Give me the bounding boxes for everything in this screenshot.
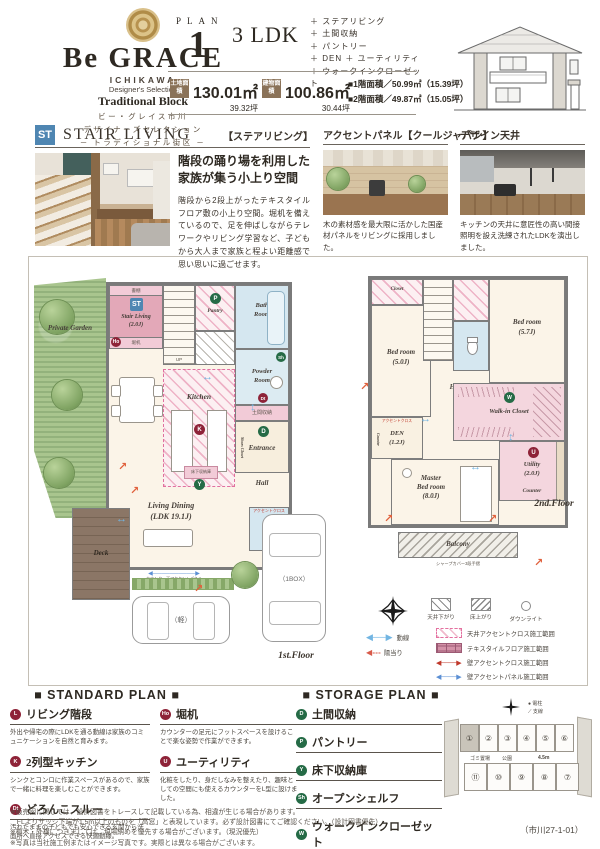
sun-arrow: ↗: [194, 584, 203, 595]
chair-icon: [111, 405, 121, 417]
design-ceiling-caption: キッチンの天井に意匠性の高い間接照明を設え洗練されたLDKを演出しました。: [460, 219, 585, 253]
bed1-size: (5.0J): [372, 358, 430, 367]
divider: [460, 144, 585, 145]
stairs-1f: UP: [163, 285, 195, 365]
lot-cell: ③: [498, 724, 517, 752]
st-plan-badge: ST: [130, 298, 143, 311]
bathtub-icon: [267, 291, 285, 345]
item-desc: シンクとコンロに作業スペースがあるので、家族で一緒に料理を楽しむことができます。: [10, 776, 150, 795]
floor-up-swatch: [471, 598, 491, 611]
flow-arrow: ↔: [470, 462, 481, 473]
lot-cell: ⑩: [487, 763, 510, 791]
item-badge: L: [10, 709, 21, 720]
room-pantry: P Pantry: [195, 285, 235, 331]
dining-table-icon: [119, 377, 155, 423]
plan-number-block: PLAN 1: [176, 16, 220, 64]
stair-living-headline-1: 階段の踊り場を利用した: [178, 153, 310, 170]
lot-number: ⑪: [472, 772, 480, 783]
room-doma: 土間収納: [235, 405, 289, 421]
underfloor-label: 床下収納庫: [191, 470, 211, 475]
item-badge: U: [160, 756, 171, 767]
utility-name: Utility: [500, 461, 564, 470]
item-desc: 外出や帰宅の際にLDKを通る動線は家族のコミュニケーションを自然と育みます。: [10, 728, 150, 747]
sofa-icon: [143, 529, 193, 547]
stairs-up-label: UP: [164, 357, 194, 362]
divider: [168, 114, 416, 115]
feature-item: ＋ ステアリビング: [310, 16, 430, 28]
floorplan-2f: Closet Bed room (5.0J) Bed room (5.7J) H…: [358, 262, 586, 602]
hedge: [132, 578, 234, 590]
utility-counter-label: Counter: [500, 488, 564, 495]
item-desc: 化粧をしたり、身だしなみを整えたり、趣味としての空間にも使えるカウンターをL型に…: [160, 776, 298, 804]
deck-label: Deck: [73, 549, 129, 558]
tree-icon: [232, 562, 258, 588]
lots-bottom-row: ⑪⑩⑨⑧⑦: [464, 763, 579, 791]
washer-icon: [270, 376, 283, 389]
building-area-value: 100.86㎡: [285, 85, 350, 102]
closet-2f: Closet: [371, 279, 423, 305]
building-area: 建物面積 100.86㎡ 30.44坪: [262, 79, 350, 114]
design-ceiling-photo: [460, 150, 585, 215]
lots-top-row: ①②③④⑤⑥: [460, 724, 574, 752]
room-bed1: Bed room (5.0J): [371, 305, 431, 417]
room-utility: U Utility (2.0J) Counter: [499, 441, 565, 501]
chair-icon: [111, 385, 121, 397]
wire-legend: ⟋ 支線: [528, 708, 543, 715]
badge-u: U: [528, 447, 539, 458]
lot-cell: ②: [479, 724, 498, 752]
lot-cell: ⑧: [533, 763, 556, 791]
road-right: [577, 717, 592, 798]
plan-number: 1: [176, 26, 220, 64]
lot-number: ②: [485, 734, 492, 743]
shelf-label: 書棚: [132, 288, 141, 293]
road-width-label: 4.5m: [538, 755, 549, 761]
shoes-closet-label: Shoes Closet: [237, 426, 245, 470]
flow-label: 動線: [397, 633, 410, 642]
range-label: 壁アクセントクロス施工範囲: [467, 658, 549, 667]
sun-arrow: ↗: [488, 514, 497, 525]
footer-note: ※写真は当社施工例またはイメージ写真です。実際とは異なる場合がございます。: [10, 839, 480, 849]
range-label: テキスタイルフロア施工範囲: [467, 644, 549, 653]
standard-plan-item: U ユーティリティ 化粧をしたり、身だしなみを整えたり、趣味としての空間にも使え…: [160, 754, 298, 804]
item-title: 床下収納庫: [312, 762, 367, 778]
lot-cell: ⑥: [555, 724, 574, 752]
stair-living-name: Stair Living: [110, 313, 162, 321]
item-badge: P: [296, 737, 307, 748]
lot-cell: ⑤: [536, 724, 555, 752]
downlight-swatch: [521, 601, 531, 611]
lot-number: ⑧: [541, 773, 548, 782]
lot-cell: ④: [517, 724, 536, 752]
road-left: [444, 719, 459, 798]
floor-up-label: 床上がり: [464, 613, 498, 621]
feature-item: ＋ DEN ＋ ユーティリティ: [310, 53, 430, 65]
open-hatch-2f: [453, 279, 489, 321]
item-badge: Y: [296, 765, 307, 776]
stair-living-size: (2.0J): [110, 321, 162, 329]
brand-medallion-icon: [126, 8, 160, 42]
flow-arrow: ↔: [506, 432, 517, 443]
divider: [35, 147, 310, 148]
accent-panel-photo: [323, 150, 448, 215]
compass-icon: [378, 596, 408, 626]
item-title: ユーティリティ: [176, 754, 252, 770]
flow-arrow: ↔: [420, 414, 431, 425]
standard-plan-item: Ho 堀机 カウンターの足元にフットスペースを設けることで楽な姿勢で作業ができま…: [160, 706, 298, 747]
land-area-value: 130.01㎡: [193, 85, 258, 102]
range-label: 壁アクセントパネル施工範囲: [467, 672, 549, 681]
standard-plan-item: L リビング階段 外出や帰宅の際にLDKを通る動線は家族のコミュニケーションを自…: [10, 706, 150, 747]
badge-w: W: [504, 392, 515, 403]
plan-type: 3 LDK: [232, 22, 299, 48]
lot-number: ⑤: [542, 734, 549, 743]
car-1box-label: （1BOX）: [279, 573, 309, 583]
balcony-label: Balcony: [399, 540, 517, 549]
sun-arrow-icon: ◀ - - -: [366, 648, 380, 657]
range-legend: 天井アクセントクロス施工範囲 テキスタイルフロア施工範囲 壁アクセントクロス施工…: [436, 628, 584, 686]
flow-arrow: ↔: [248, 402, 259, 413]
sitemap-compass-icon: [502, 698, 520, 716]
lot-number: ⑥: [561, 734, 568, 743]
storage-plan-item: P パントリー: [296, 734, 442, 753]
item-title: 土間収納: [312, 706, 356, 722]
trash-label: ゴミ置場: [470, 755, 490, 762]
sitemap: ● 電柱 ⟋ 支線 ①②③④⑤⑥ ゴミ置場 公園 4.5m ⑪⑩⑨⑧⑦: [444, 698, 594, 800]
feature-item: ＋ パントリー: [310, 41, 430, 53]
footer-note: ※販売図に関しては、設計図書をトレースして記載している為、相違が生じる場合があり…: [10, 808, 480, 818]
lot-number: ③: [504, 734, 511, 743]
pole-legend: ● 電柱: [528, 700, 542, 707]
car-kei: （軽）: [132, 596, 230, 644]
footer-note: FLよりサッシ下端が1.5m以上のものを「高窓」と表現しています。必ず設計図書に…: [10, 818, 480, 828]
room-kitchen: Kitchen K 床下収納庫 Y: [163, 369, 235, 487]
toilet-icon: [467, 340, 478, 355]
room-stair-living: 書棚 ST Stair Living (2.0J) 堀机 Ho: [109, 285, 163, 349]
range-legend-row: 天井アクセントクロス施工範囲: [436, 628, 584, 638]
range-legend-row: 壁アクセントパネル施工範囲: [436, 672, 584, 681]
building-area-tsubo: 30.44坪: [285, 103, 350, 114]
stair-living-header: ST STAIR LIVING 【ステアリビング】: [35, 125, 313, 145]
room-toilet-2f: [453, 321, 489, 371]
flow-arrow: ↔: [202, 372, 213, 383]
lot-number: ①: [466, 734, 473, 743]
room-master: Master Bed room (8.0J): [391, 459, 499, 525]
range-legend-row: 壁アクセントクロス施工範囲: [436, 658, 584, 667]
range-swatch: [436, 628, 462, 638]
item-title: リビング階段: [26, 706, 92, 722]
lot-cell: ①: [460, 724, 479, 752]
room-entrance: D Entrance Shoes Closet: [235, 421, 289, 473]
room-den: アクセントクロス DEN (1.2J) Counter: [371, 417, 423, 459]
sun-arrow: ↗: [534, 558, 543, 569]
kitchen-island-icon: [171, 410, 193, 472]
range-legend-row: テキスタイルフロア施工範囲: [436, 643, 584, 653]
chair-icon: [153, 405, 163, 417]
floor2-label: 2nd.Floor: [522, 498, 586, 511]
lot-cell: ⑪: [464, 763, 487, 791]
item-title: 2列型キッチン: [26, 754, 98, 770]
closet-label: Closet: [372, 287, 422, 294]
room-bath: Bath Room: [235, 285, 289, 349]
range-label: 天井アクセントクロス施工範囲: [467, 629, 555, 638]
park-label: 公園: [502, 755, 512, 762]
lot-number: ⑦: [564, 773, 571, 782]
item-badge: Sh: [296, 793, 307, 804]
ceiling-drop-label: 天井下がり: [424, 613, 458, 621]
item-title: オープンシェルフ: [312, 790, 399, 806]
range-swatch: [436, 659, 462, 667]
stair-living-text: 階段の踊り場を利用した 家族が集う小上り空間 階段から2段上がったテキスタイルフ…: [178, 153, 310, 272]
storage-plan-item: Sh オープンシェルフ: [296, 790, 442, 809]
badge-p: P: [210, 293, 221, 304]
land-area-badge: 土地面積: [170, 79, 189, 98]
stair-living-photo: [35, 153, 170, 246]
badge-ho: Ho: [111, 337, 121, 347]
badge-sh: Sh: [276, 352, 286, 362]
stair-living-headline-2: 家族が集う小上り空間: [178, 170, 310, 187]
room-bed2: Bed room (5.7J): [489, 279, 565, 383]
house-2f: Closet Bed room (5.0J) Bed room (5.7J) H…: [368, 276, 568, 528]
bed1-name: Bed room: [372, 348, 430, 357]
floor1-label: 1st.Floor: [266, 650, 326, 663]
land-area: 土地面積 130.01㎡ 39.32坪: [170, 79, 258, 114]
car-kei-label: （軽）: [171, 615, 192, 625]
bed2-name: Bed room: [490, 318, 564, 327]
design-ceiling-title: デザイン天井: [460, 127, 520, 142]
sun-arrow: ↗: [118, 462, 127, 473]
floor2-area: ■2階面積／49.87㎡（15.05坪）: [348, 92, 468, 107]
badge-d: D: [258, 426, 269, 437]
kitchen-counter-icon: [207, 410, 227, 472]
storage-closet-1f: [195, 331, 235, 365]
item-badge: Ho: [160, 709, 171, 720]
footer-note: ※植木・外構につきましては、現場納めを優先する場合がございます。（現況優先）: [10, 828, 480, 838]
sun-arrow: ↗: [360, 382, 369, 393]
tree-icon: [52, 380, 82, 410]
hall-label-1f: Hall: [235, 479, 289, 488]
floorplan-1f: Private Garden 書棚 ST Stair Living (2.0J)…: [34, 262, 334, 662]
kitchen-label: Kitchen: [164, 392, 234, 402]
standard-plan-item: K 2列型キッチン シンクとコンロに作業スペースがあるので、家族で一緒に料理を楽…: [10, 754, 150, 795]
range-swatch: [436, 643, 462, 653]
divider: [323, 144, 448, 145]
ceiling-drop-swatch: [431, 598, 451, 611]
desk-label: 堀机: [132, 340, 141, 345]
accent-panel-caption: 木の素材感を最大限に活かした国産材パネルをリビングに採用しました。: [323, 219, 448, 253]
sun-arrow: ↗: [384, 514, 393, 525]
handrail-label: シャープカバー3段手摺: [398, 561, 518, 566]
standard-plan-col2: Ho 堀机 カウンターの足元にフットスペースを設けることで楽な姿勢で作業ができま…: [160, 706, 298, 810]
item-title: 堀机: [176, 706, 198, 722]
floor-areas: ■1階面積／50.99㎡（15.39坪） ■2階面積／49.87㎡（15.05坪…: [348, 77, 468, 108]
pantry-label: Pantry: [196, 308, 234, 315]
downlight-label: ダウンライト: [506, 615, 546, 623]
lot-number: ⑩: [495, 773, 502, 782]
lot-number: ④: [523, 734, 530, 743]
stairs-2f: [423, 279, 453, 361]
building-area-badge: 建物面積: [262, 79, 281, 98]
den-counter-label: Counter: [373, 422, 380, 456]
divider: [168, 71, 416, 72]
footer-notes: ※販売図に関しては、設計図書をトレースして記載している為、相違が生じる場合があり…: [10, 808, 480, 849]
room-powder: Powder Room Sh Dt: [235, 349, 289, 405]
balcony: Balcony: [398, 532, 518, 558]
badge-k: K: [194, 424, 205, 435]
lot-number: ⑨: [518, 773, 525, 782]
land-area-tsubo: 39.32坪: [193, 103, 258, 114]
lot-cell: ⑨: [510, 763, 533, 791]
st-badge: ST: [35, 125, 55, 145]
flyer-page: Be GRACE ICHIKAWA Designer's Selection T…: [0, 0, 600, 849]
feature-item: ＋ 土間収納: [310, 28, 430, 40]
tree-icon: [44, 458, 74, 488]
range-swatch: [436, 673, 462, 681]
standard-plan-title: ■ STANDARD PLAN ■: [22, 688, 192, 702]
downlight-icon: [402, 468, 412, 478]
storage-plan-item: D 土間収納: [296, 706, 442, 725]
badge-y: Y: [194, 479, 205, 490]
car-1box: （1BOX）: [262, 514, 326, 642]
item-title: パントリー: [312, 734, 368, 750]
document-code: （市川27-1-01）: [520, 824, 583, 836]
section-title-en: STAIR LIVING: [63, 126, 191, 144]
plan-legend: 天井下がり 床上がり ダウンライト ◀──▶動線 ◀ - - -陽当り 天井アク…: [360, 592, 584, 682]
floor1-area: ■1階面積／50.99㎡（15.39坪）: [348, 77, 468, 92]
utility-size: (2.0J): [500, 470, 564, 479]
chair-icon: [153, 385, 163, 397]
sun-arrow: ↗: [130, 486, 139, 497]
house-elevation-illustration: [452, 20, 588, 118]
sunlight-label: 陽当り: [384, 648, 403, 657]
bed2-size: (5.7J): [490, 328, 564, 337]
storage-plan-item: Y 床下収納庫: [296, 762, 442, 781]
item-badge: D: [296, 709, 307, 720]
lot-cell: ⑦: [556, 763, 579, 791]
flow-arrow: ↔: [116, 514, 127, 525]
garden-label: Private Garden: [28, 324, 112, 333]
storage-plan-title: ■ STORAGE PLAN ■: [296, 688, 446, 702]
item-badge: K: [10, 756, 21, 767]
section-title-jp: 【ステアリビング】: [223, 128, 313, 143]
item-desc: カウンターの足元にフットスペースを設けることで楽な姿勢で作業ができます。: [160, 728, 298, 747]
wic-label: Walk-in Closet: [454, 408, 564, 417]
flow-arrow-icon: ◀──▶: [366, 632, 393, 643]
powder-label-1: Powder: [236, 368, 288, 377]
